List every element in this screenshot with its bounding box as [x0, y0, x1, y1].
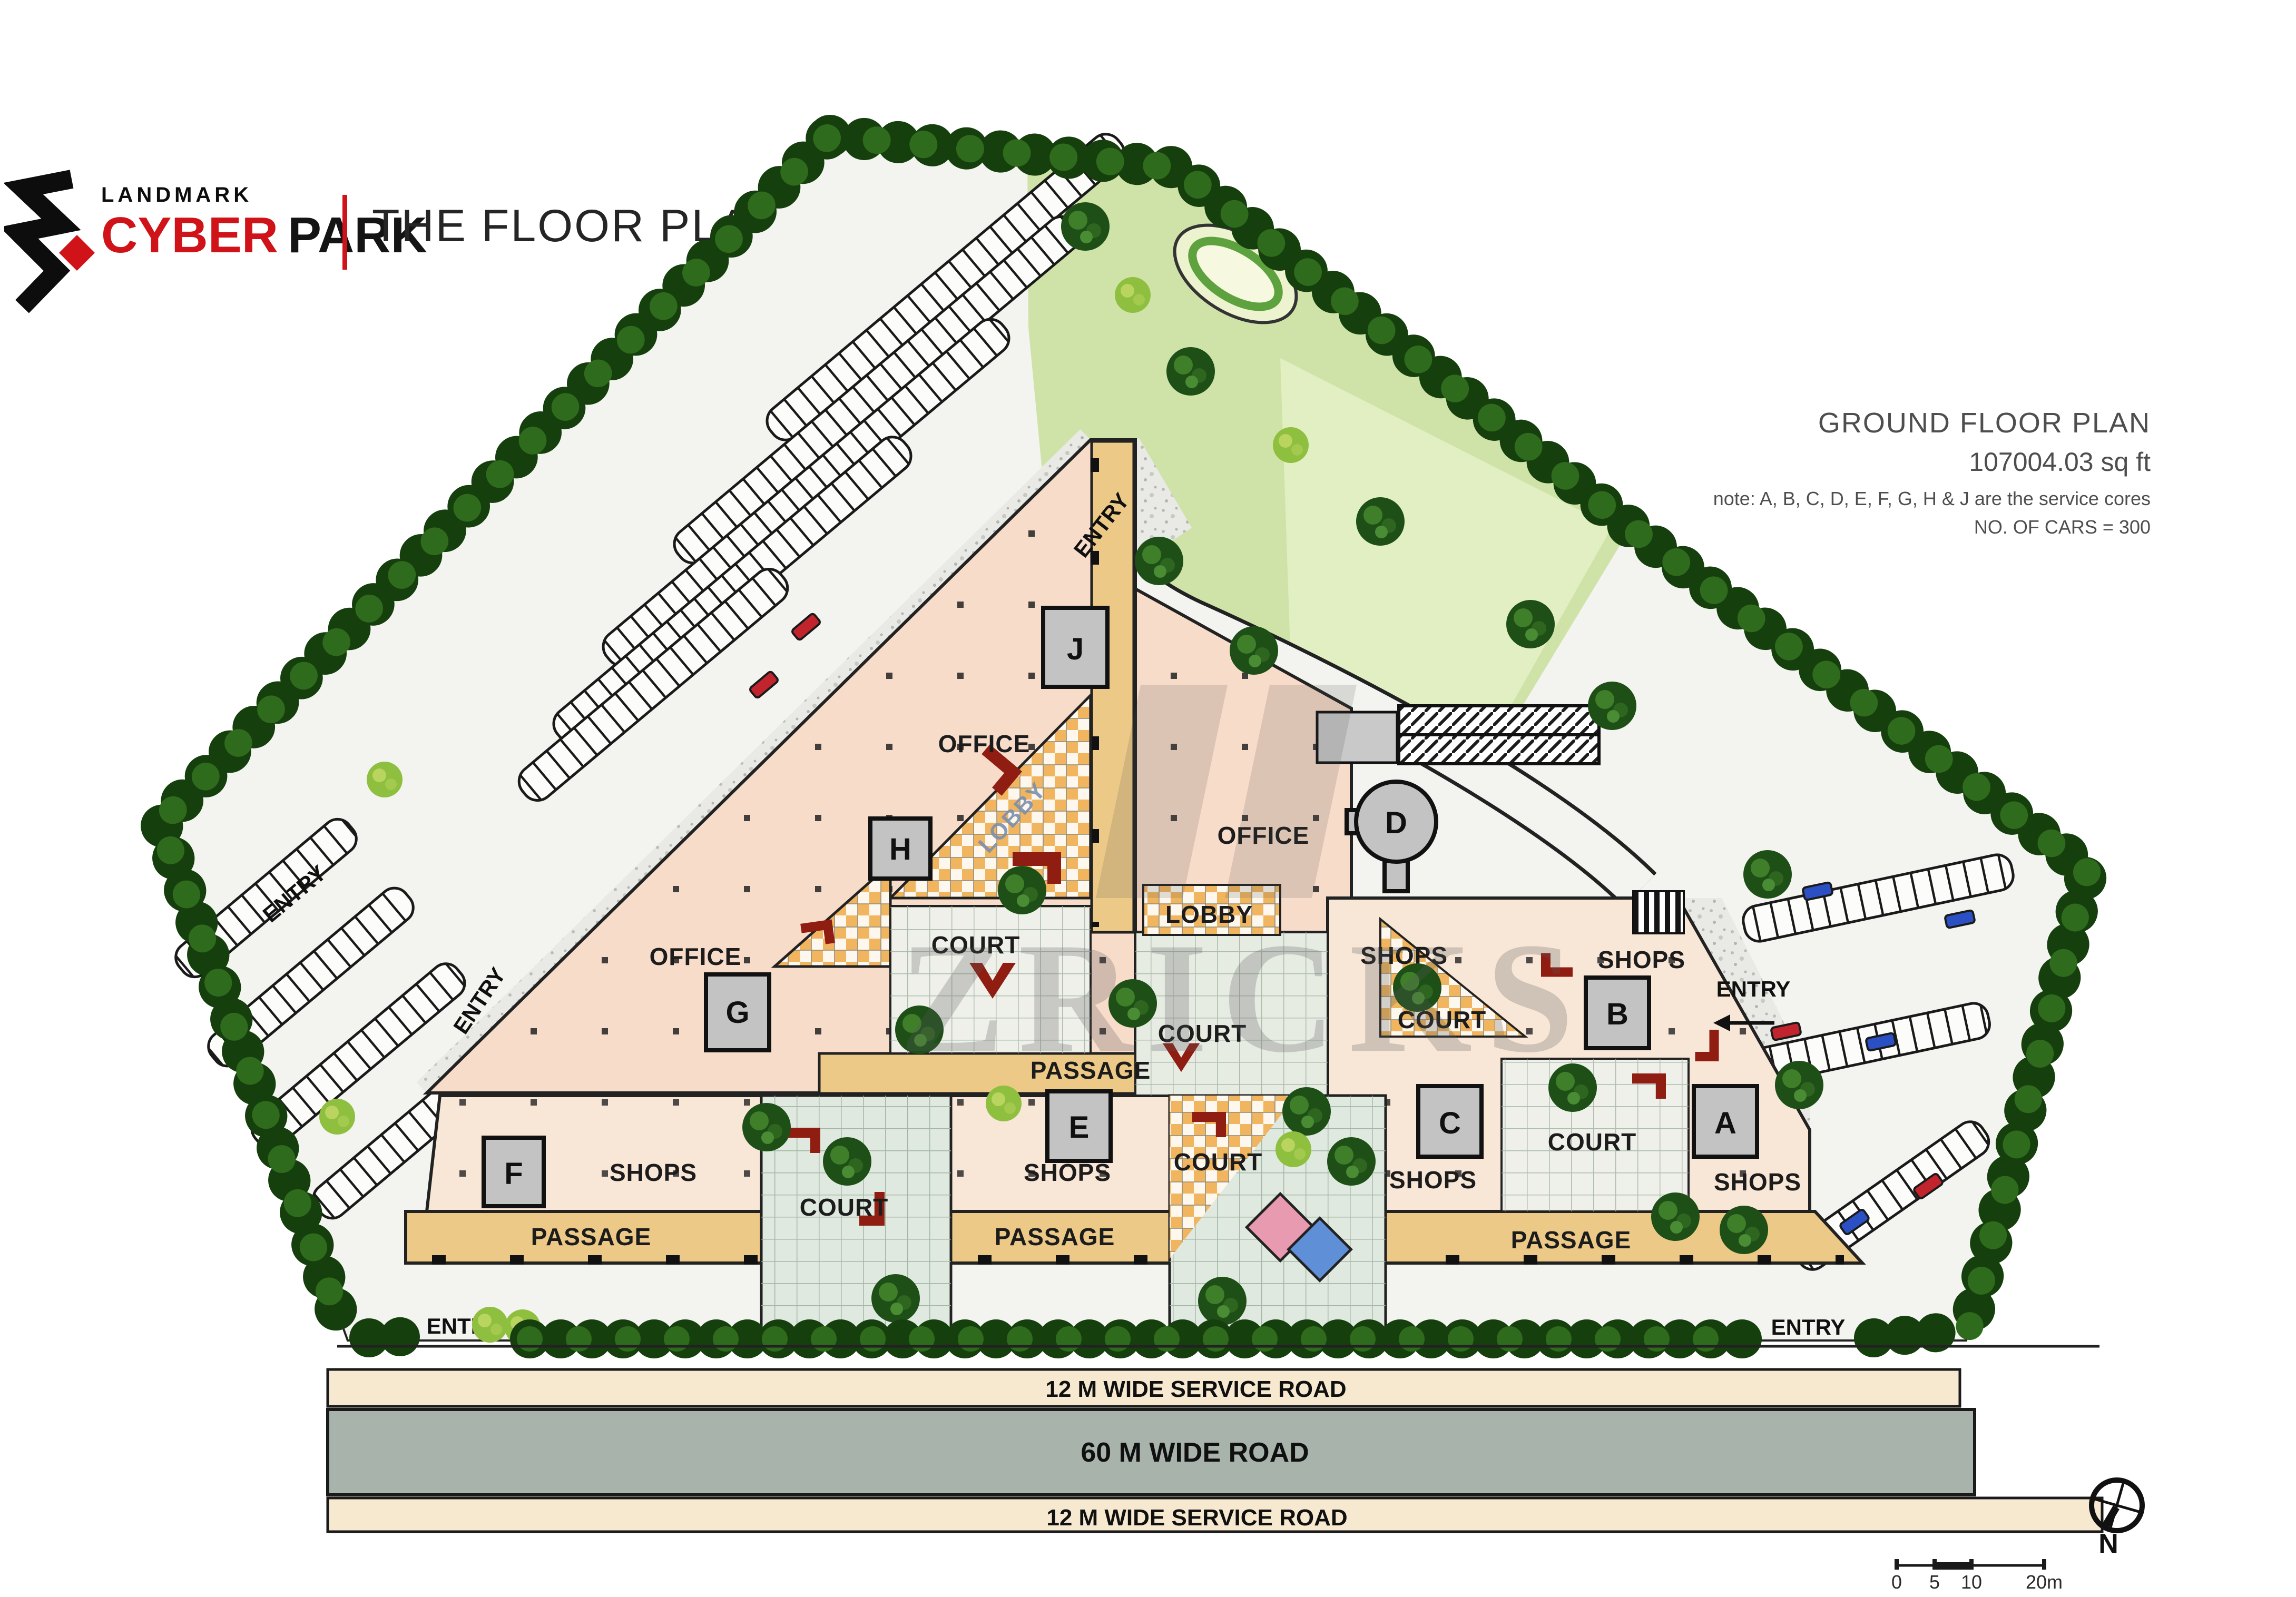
core-letter-j: J — [1067, 632, 1084, 666]
ramp-hatched — [1317, 706, 1599, 764]
entry-label-bottom-right: ENTRY — [1771, 1315, 1846, 1339]
shops-label-5: SHOPS — [1389, 1166, 1477, 1194]
court-label-4: COURT — [1548, 1128, 1637, 1156]
shops-label-6: SHOPS — [1714, 1168, 1801, 1196]
passage-label-3: PASSAGE — [1511, 1226, 1632, 1254]
office-label-top: OFFICE — [938, 730, 1031, 757]
passage-label-2: PASSAGE — [995, 1223, 1115, 1250]
page: LANDMARK CYBER PARK THE FLOOR PLANS GROU… — [0, 0, 2296, 1597]
core-letter-c: C — [1439, 1106, 1461, 1140]
core-letter-f: F — [504, 1157, 523, 1191]
office-label-left: OFFICE — [650, 943, 742, 970]
shops-label-4: SHOPS — [1024, 1159, 1111, 1186]
scale-tick-5: 5 — [1929, 1571, 1940, 1593]
watermark-text: ZRICKS — [899, 910, 1587, 1085]
passage-label-1: PASSAGE — [531, 1223, 652, 1250]
scale-tick-20: 20m — [2026, 1571, 2063, 1593]
core-letter-b: B — [1606, 997, 1628, 1031]
entry-label-right: ENTRY — [1716, 977, 1791, 1001]
core-letter-h: H — [889, 832, 911, 866]
north-label: N — [2098, 1529, 2118, 1559]
scale-tick-10: 10 — [1961, 1571, 1982, 1593]
core-letter-e: E — [1069, 1110, 1090, 1145]
court-label-6: COURT — [1174, 1148, 1263, 1176]
core-letter-a: A — [1714, 1106, 1736, 1140]
core-letter-g: G — [725, 995, 749, 1030]
service-road-top-label: 12 M WIDE SERVICE ROAD — [1045, 1376, 1346, 1402]
court-label-5: COURT — [800, 1194, 889, 1221]
core-letter-d: D — [1385, 806, 1407, 840]
main-road-label: 60 M WIDE ROAD — [1081, 1437, 1309, 1468]
zebra-crossing — [1633, 891, 1684, 933]
shops-label-3: SHOPS — [610, 1159, 697, 1186]
shops-label-2: SHOPS — [1598, 946, 1685, 973]
service-road-bottom-label: 12 M WIDE SERVICE ROAD — [1046, 1505, 1347, 1531]
scale-bar: 0 5 10 20m — [1891, 1559, 2063, 1593]
site-plan: A B C D E F G H J OFFICE OFFICE OFFICE S… — [0, 0, 2296, 1597]
scale-tick-0: 0 — [1891, 1571, 1902, 1593]
